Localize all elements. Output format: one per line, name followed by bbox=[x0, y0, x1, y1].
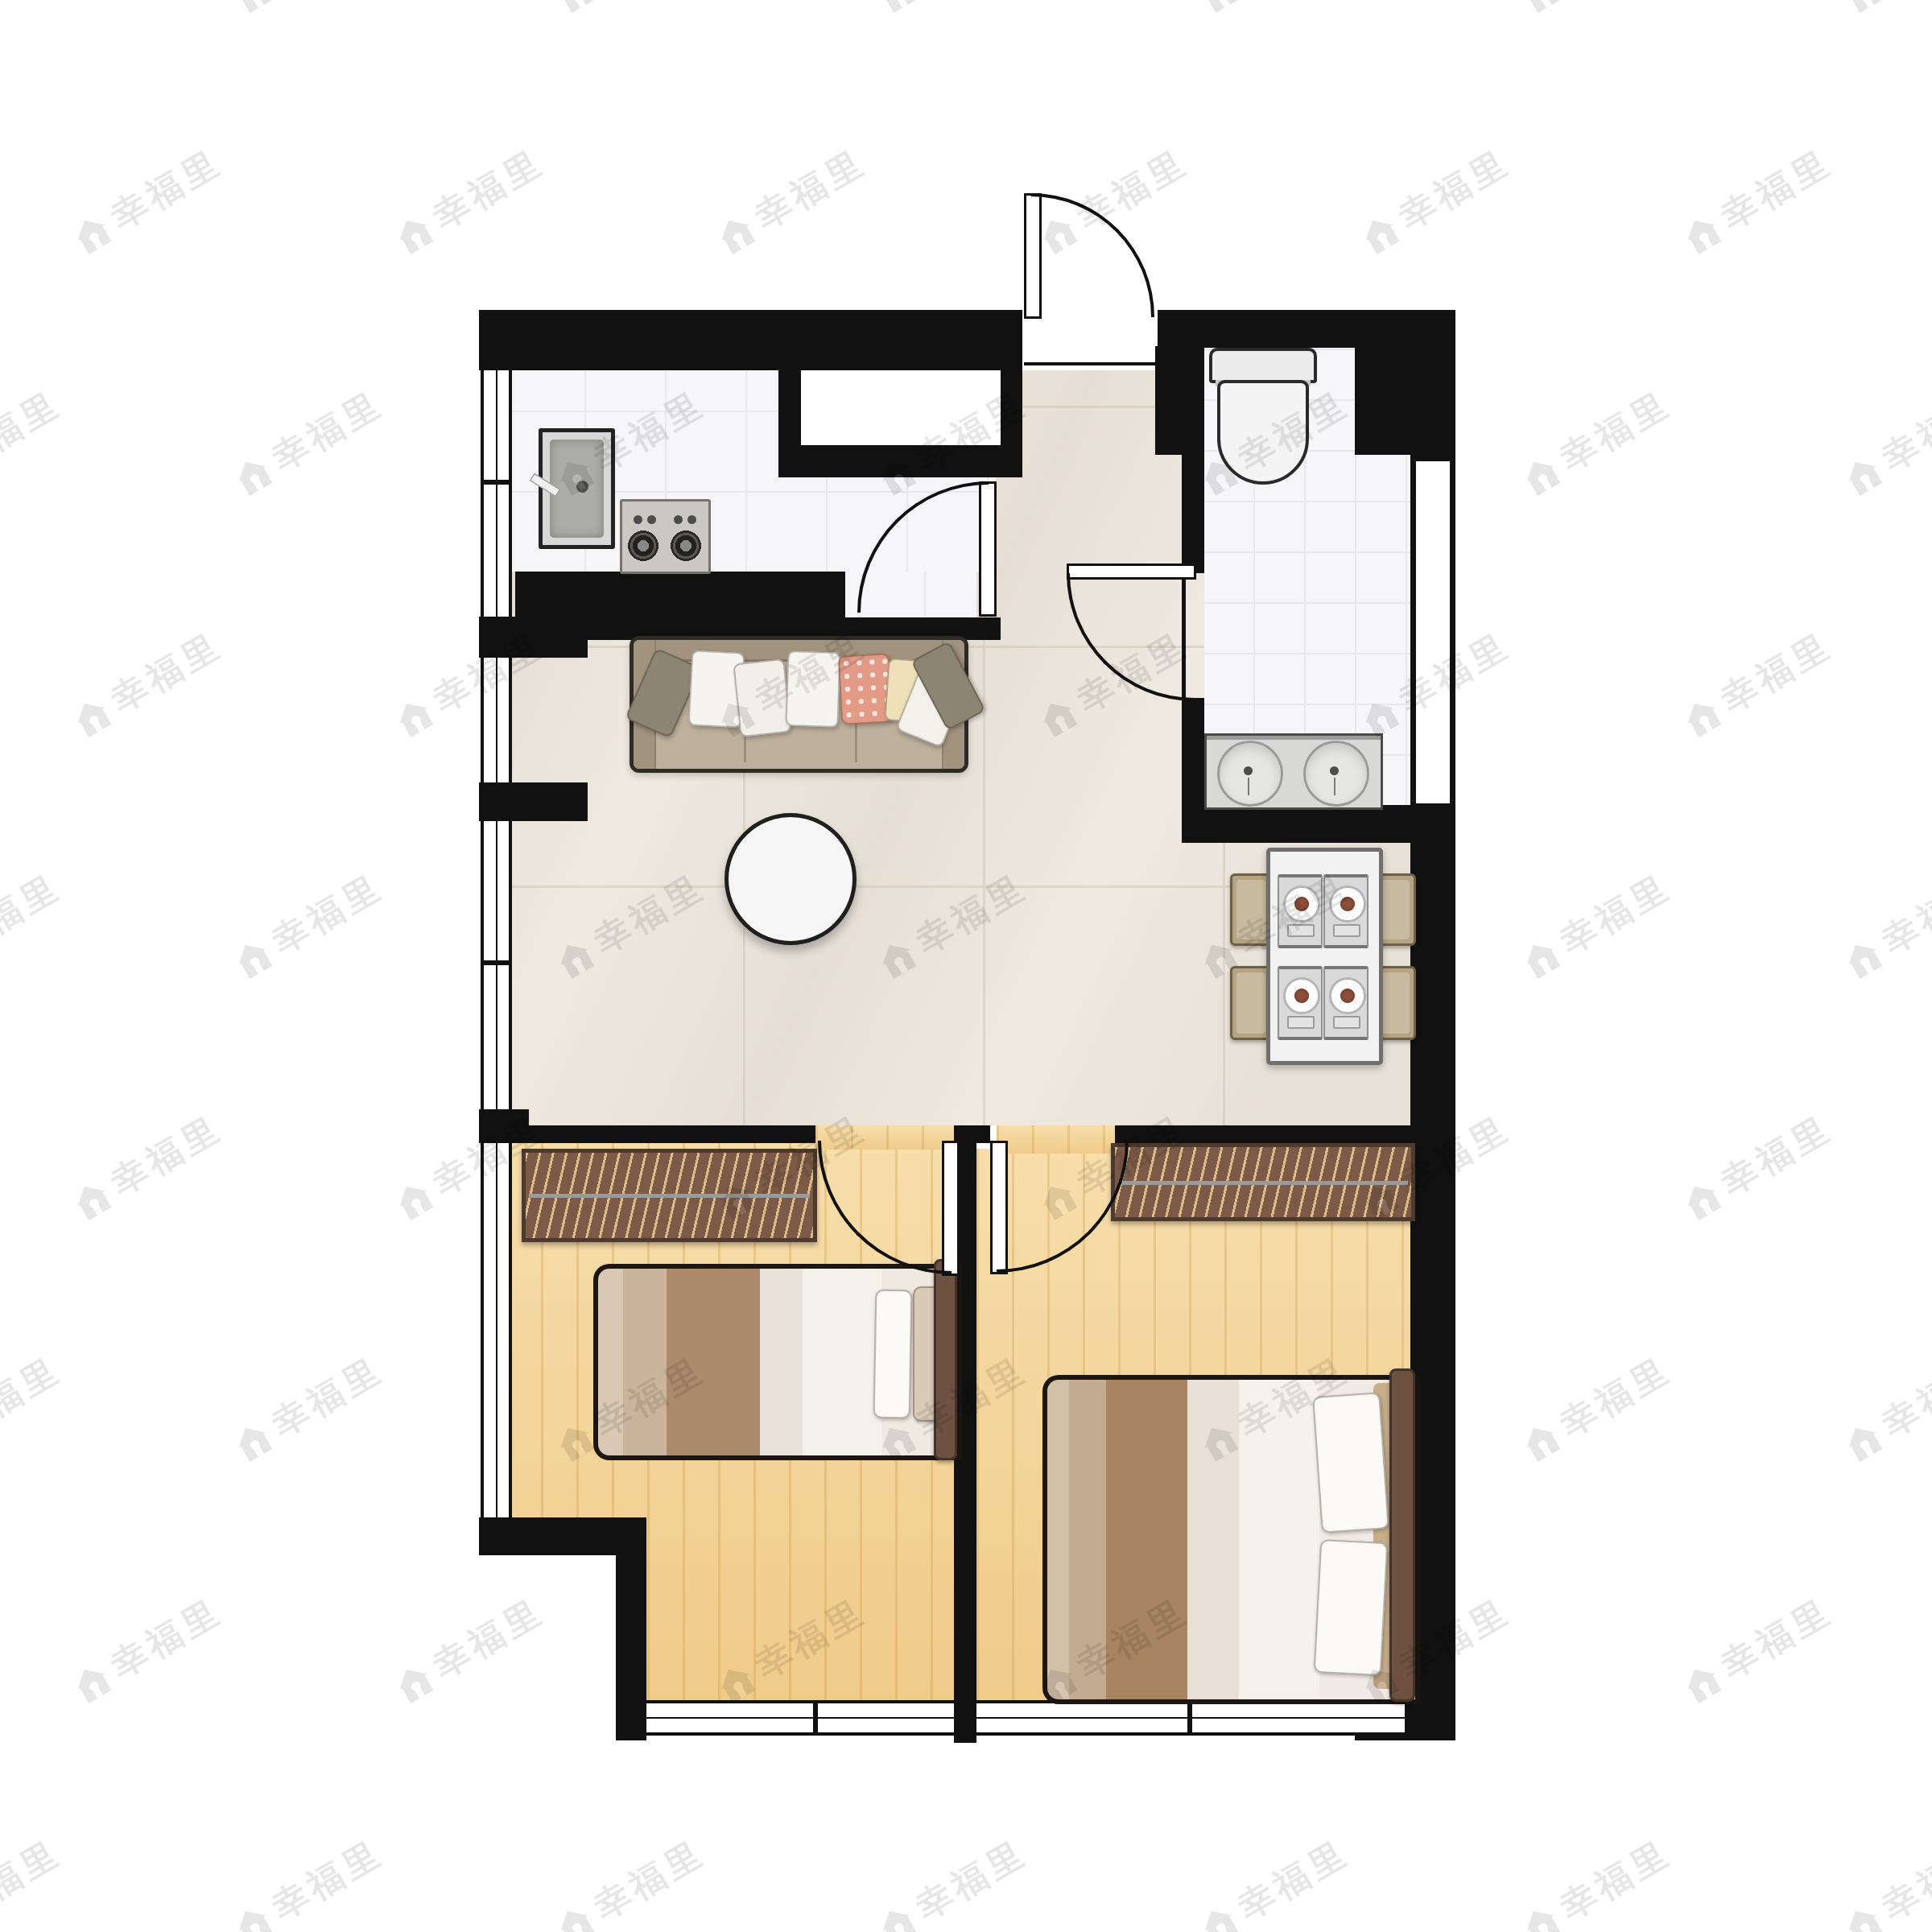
watermark: 幸福里 bbox=[869, 1829, 1036, 1932]
window-tick bbox=[813, 1703, 818, 1732]
living-left-window-lower bbox=[481, 821, 512, 1109]
stove-burner bbox=[667, 527, 704, 564]
wall-bathroom-left-mid bbox=[1182, 455, 1204, 573]
watermark-text: 幸福里 bbox=[1713, 1104, 1841, 1206]
watermark: 幸福里 bbox=[708, 138, 875, 262]
house-icon bbox=[1515, 1898, 1566, 1932]
watermark-text: 幸福里 bbox=[1552, 380, 1680, 481]
watermark-text: 幸福里 bbox=[747, 138, 875, 240]
watermark: 幸福里 bbox=[0, 380, 70, 504]
house-icon bbox=[1837, 1415, 1888, 1466]
watermark: 幸福里 bbox=[1835, 1829, 1932, 1932]
plate bbox=[1283, 885, 1320, 923]
right-bedroom-wardrobe bbox=[1111, 1143, 1415, 1221]
floor-plan: 幸福里幸福里幸福里幸福里幸福里幸福里幸福里幸福里幸福里幸福里幸福里幸福里幸福里幸… bbox=[0, 0, 1932, 1932]
wall-step-horizontal bbox=[479, 1517, 646, 1555]
watermark: 幸福里 bbox=[64, 1104, 231, 1228]
food bbox=[1294, 897, 1309, 911]
watermark: 幸福里 bbox=[1835, 380, 1932, 504]
stove-knob bbox=[634, 515, 642, 524]
dining-table bbox=[1266, 848, 1383, 1065]
watermark: 幸福里 bbox=[547, 1829, 714, 1932]
left-bedroom-bed bbox=[593, 1264, 962, 1460]
watermark: 幸福里 bbox=[1674, 1587, 1841, 1711]
watermark: 幸福里 bbox=[0, 1346, 70, 1470]
watermark-text: 幸福里 bbox=[1230, 1829, 1358, 1930]
bedroom-left-side-window bbox=[481, 1143, 512, 1517]
watermark-text: 幸福里 bbox=[1713, 138, 1841, 240]
toilet bbox=[1209, 348, 1317, 485]
house-icon bbox=[549, 1898, 600, 1932]
right-bedroom-bed bbox=[1042, 1375, 1420, 1704]
toilet-bowl bbox=[1217, 380, 1309, 485]
wall-void-bottom bbox=[801, 445, 1022, 477]
house-icon bbox=[1515, 932, 1566, 983]
wall-bedrooms-top-left bbox=[479, 1125, 815, 1143]
food bbox=[1294, 989, 1309, 1003]
wall-bathroom-bottom bbox=[1182, 805, 1410, 843]
house-icon bbox=[871, 0, 922, 17]
watermark: 幸福里 bbox=[1191, 1829, 1358, 1932]
napkin bbox=[1333, 1016, 1360, 1029]
vanity-edge bbox=[1207, 736, 1381, 740]
bed-pillow bbox=[1312, 1392, 1389, 1533]
watermark: 幸福里 bbox=[1513, 1346, 1680, 1470]
bed-pillow bbox=[873, 1290, 913, 1419]
chair-pad bbox=[1236, 972, 1265, 1034]
watermark-text: 幸福里 bbox=[1874, 1829, 1932, 1930]
kitchen-left-window bbox=[481, 370, 512, 617]
plate bbox=[1329, 885, 1366, 923]
wall-hall-bathroom bbox=[1155, 346, 1204, 455]
watermark-text: 幸福里 bbox=[103, 138, 231, 240]
toilet-tank bbox=[1209, 348, 1317, 383]
house-icon bbox=[227, 1898, 278, 1932]
wall-left-stub-2 bbox=[479, 782, 588, 821]
place-setting bbox=[1278, 966, 1323, 1040]
watermark: 幸福里 bbox=[1513, 863, 1680, 987]
wardrobe-rail bbox=[1118, 1181, 1408, 1185]
house-icon bbox=[1837, 932, 1888, 983]
gas-stove bbox=[620, 499, 711, 574]
house-icon bbox=[388, 691, 439, 741]
house-icon bbox=[1676, 1174, 1727, 1224]
window-glazing bbox=[646, 1717, 954, 1719]
house-icon bbox=[1676, 208, 1727, 258]
house-icon bbox=[1515, 1415, 1566, 1466]
left-bedroom-wardrobe bbox=[522, 1149, 817, 1242]
stove-knob bbox=[674, 515, 683, 524]
watermark: 幸福里 bbox=[1835, 863, 1932, 987]
entry-door-swing-arc bbox=[1031, 193, 1154, 317]
watermark-text: 幸福里 bbox=[1391, 138, 1519, 240]
watermark-text: 幸福里 bbox=[264, 863, 392, 964]
sink-drain bbox=[576, 481, 588, 493]
watermark-text: 幸福里 bbox=[1552, 1829, 1680, 1930]
place-setting bbox=[1323, 874, 1368, 948]
plate bbox=[1329, 977, 1366, 1014]
napkin bbox=[1333, 924, 1360, 937]
watermark: 幸福里 bbox=[1674, 1104, 1841, 1228]
napkin bbox=[1287, 924, 1315, 937]
vanity-faucet bbox=[1244, 766, 1253, 775]
stove-knob bbox=[647, 515, 656, 524]
wall-top-kitchen bbox=[479, 310, 1022, 370]
house-icon bbox=[1515, 449, 1566, 500]
watermark: 幸福里 bbox=[225, 0, 392, 22]
duct-shaft bbox=[1414, 459, 1452, 806]
house-icon bbox=[1193, 0, 1244, 17]
house-icon bbox=[388, 1657, 439, 1707]
watermark: 幸福里 bbox=[1674, 621, 1841, 745]
watermark: 幸福里 bbox=[225, 380, 392, 504]
house-icon bbox=[1354, 208, 1405, 258]
window-glazing bbox=[496, 658, 497, 782]
house-icon bbox=[227, 1415, 278, 1466]
house-icon bbox=[1837, 0, 1888, 17]
wall-bathroom-left-lower bbox=[1182, 698, 1204, 805]
right-bed-headboard bbox=[1389, 1368, 1415, 1702]
watermark: 幸福里 bbox=[547, 0, 714, 22]
wall-void-left bbox=[778, 370, 801, 477]
window-glazing bbox=[496, 1143, 497, 1517]
floor-cutout bbox=[506, 1555, 616, 1742]
watermark: 幸福里 bbox=[225, 863, 392, 987]
pillow bbox=[785, 650, 840, 728]
chair-pad bbox=[1381, 972, 1410, 1034]
house-icon bbox=[549, 0, 600, 17]
house-icon bbox=[227, 932, 278, 983]
window-tick bbox=[484, 960, 509, 965]
watermark-text: 幸福里 bbox=[0, 1829, 70, 1930]
watermark: 幸福里 bbox=[1674, 138, 1841, 262]
watermark-text: 幸福里 bbox=[425, 138, 553, 240]
place-setting bbox=[1278, 874, 1323, 948]
house-icon bbox=[66, 691, 117, 741]
watermark-text: 幸福里 bbox=[103, 1587, 231, 1689]
watermark: 幸福里 bbox=[0, 1829, 70, 1932]
house-icon bbox=[227, 0, 278, 17]
watermark: 幸福里 bbox=[1513, 0, 1680, 22]
bedroom-left-bottom-window bbox=[646, 1700, 954, 1736]
watermark: 幸福里 bbox=[0, 0, 70, 22]
watermark-text: 幸福里 bbox=[1874, 1346, 1932, 1447]
place-setting bbox=[1323, 966, 1368, 1040]
watermark-text: 幸福里 bbox=[0, 863, 70, 964]
entry-threshold bbox=[1022, 310, 1158, 370]
house-icon bbox=[1837, 449, 1888, 500]
house-icon bbox=[66, 1657, 117, 1707]
watermark-text: 幸福里 bbox=[264, 1829, 392, 1930]
wardrobe-rail bbox=[529, 1194, 810, 1198]
watermark: 幸福里 bbox=[64, 621, 231, 745]
vanity-faucet bbox=[1330, 766, 1339, 775]
house-icon bbox=[871, 1898, 922, 1932]
watermark-text: 幸福里 bbox=[1713, 1587, 1841, 1689]
house-icon bbox=[227, 449, 278, 500]
watermark: 幸福里 bbox=[0, 863, 70, 987]
watermark: 幸福里 bbox=[386, 138, 553, 262]
napkin bbox=[1287, 1016, 1315, 1029]
watermark-text: 幸福里 bbox=[0, 1346, 70, 1447]
watermark-text: 幸福里 bbox=[103, 621, 231, 723]
watermark-text: 幸福里 bbox=[264, 1346, 392, 1447]
threshold-line bbox=[1024, 362, 1156, 365]
bedroom-right-bottom-window bbox=[976, 1700, 1405, 1736]
watermark: 幸福里 bbox=[225, 1829, 392, 1932]
chair-pad bbox=[1236, 880, 1265, 939]
bed-pillow bbox=[1314, 1539, 1389, 1676]
window-glazing bbox=[496, 821, 497, 1109]
plate bbox=[1283, 977, 1320, 1014]
kitchen-sink bbox=[539, 428, 615, 549]
watermark-text: 幸福里 bbox=[0, 380, 70, 481]
watermark: 幸福里 bbox=[1835, 1346, 1932, 1470]
watermark-text: 幸福里 bbox=[586, 1829, 714, 1930]
house-icon bbox=[388, 1174, 439, 1224]
house-icon bbox=[66, 208, 117, 258]
house-icon bbox=[710, 208, 761, 258]
watermark-text: 幸福里 bbox=[1874, 380, 1932, 481]
watermark: 幸福里 bbox=[1352, 138, 1519, 262]
house-icon bbox=[1515, 0, 1566, 17]
wall-void-right bbox=[1001, 370, 1022, 445]
wall-step-vertical bbox=[616, 1555, 646, 1740]
house-icon bbox=[1676, 1657, 1727, 1707]
house-icon bbox=[66, 1174, 117, 1224]
watermark: 幸福里 bbox=[1513, 380, 1680, 504]
watermark-text: 幸福里 bbox=[1713, 621, 1841, 723]
window-tick bbox=[484, 480, 509, 485]
round-coffee-table bbox=[724, 813, 857, 945]
stove-burner bbox=[625, 527, 662, 564]
house-icon bbox=[1193, 1898, 1244, 1932]
food bbox=[1340, 989, 1355, 1003]
wall-left-stub-1 bbox=[479, 617, 588, 658]
house-icon bbox=[1837, 1898, 1888, 1932]
vanity-drain bbox=[1334, 778, 1335, 795]
watermark: 幸福里 bbox=[64, 138, 231, 262]
left-bed-headboard bbox=[934, 1259, 957, 1460]
watermark-text: 幸福里 bbox=[264, 380, 392, 481]
living-left-window-upper bbox=[481, 658, 512, 782]
watermark: 幸福里 bbox=[1835, 0, 1932, 22]
house-icon bbox=[1676, 691, 1727, 741]
food bbox=[1340, 897, 1355, 911]
watermark: 幸福里 bbox=[225, 1346, 392, 1470]
void-closet bbox=[801, 370, 1001, 445]
window-glazing bbox=[496, 370, 497, 617]
watermark: 幸福里 bbox=[869, 0, 1036, 22]
watermark-text: 幸福里 bbox=[1552, 1346, 1680, 1447]
watermark: 幸福里 bbox=[1513, 1829, 1680, 1932]
pillow bbox=[733, 658, 791, 737]
stove-knob bbox=[687, 515, 696, 524]
three-seat-sofa bbox=[630, 636, 968, 773]
double-sink-vanity bbox=[1204, 733, 1383, 810]
watermark-text: 幸福里 bbox=[103, 1104, 231, 1206]
wall-bathroom-corner bbox=[1355, 348, 1410, 455]
watermark: 幸福里 bbox=[64, 1587, 231, 1711]
watermark-text: 幸福里 bbox=[1874, 863, 1932, 964]
watermark-text: 幸福里 bbox=[1552, 863, 1680, 964]
vanity-drain bbox=[1248, 778, 1249, 795]
window-tick bbox=[1187, 1703, 1192, 1732]
chair-pad bbox=[1381, 880, 1410, 939]
watermark: 幸福里 bbox=[1191, 0, 1358, 22]
watermark-text: 幸福里 bbox=[908, 1829, 1036, 1930]
house-icon bbox=[388, 208, 439, 258]
